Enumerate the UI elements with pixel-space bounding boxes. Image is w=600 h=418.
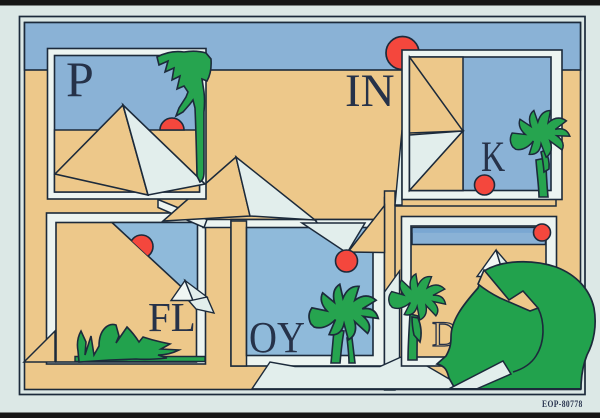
svg-text:OY: OY [249,313,305,362]
svg-text:FL: FL [148,294,196,340]
svg-text:K: K [481,134,505,181]
svg-text:P: P [66,51,94,107]
svg-text:EOP-80778: EOP-80778 [542,398,583,409]
svg-text:IN: IN [345,65,395,117]
